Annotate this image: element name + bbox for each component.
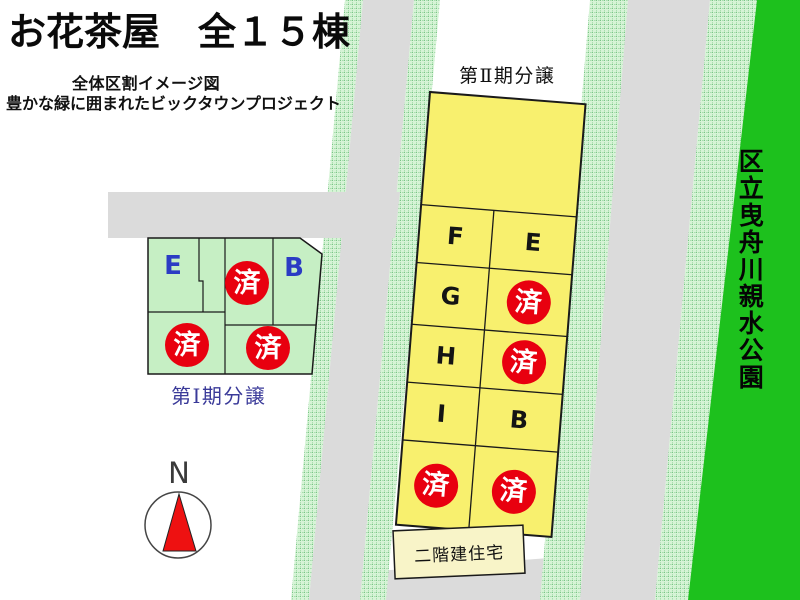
sold-badge: 済 xyxy=(500,339,547,386)
lot-label-b: B xyxy=(279,255,309,287)
lot-cell: 済 xyxy=(469,446,558,537)
lot-cell: 済 xyxy=(480,330,567,394)
park-label: 区立曳舟川親水公園 xyxy=(736,148,762,391)
sold-badge: 済 xyxy=(225,261,269,305)
phase2-front-lot xyxy=(421,92,585,217)
lot-label-e2: E xyxy=(524,230,542,255)
sold-badge: 済 xyxy=(246,326,290,370)
lot-cell: G xyxy=(412,262,490,330)
sold-badge: 済 xyxy=(490,468,537,515)
lot-cell: B xyxy=(475,388,562,452)
lot-cell: E xyxy=(489,210,576,274)
lot-cell: H xyxy=(407,324,484,388)
subtitle-line2: 豊かな緑に囲まれたビックタウンプロジェクト xyxy=(6,90,341,114)
compass-north-arrow-icon xyxy=(163,494,196,551)
lot-label-f: F xyxy=(446,224,464,249)
lot-label-h: H xyxy=(435,343,457,369)
compass xyxy=(145,492,211,558)
phase2-label: 第Ⅱ期分譲 xyxy=(459,61,555,88)
lot-cell: F xyxy=(417,205,494,269)
page-title: お花茶屋 全１５棟 xyxy=(8,12,350,54)
compass-north-letter: N xyxy=(164,459,194,491)
lot-cell: I xyxy=(403,382,480,446)
lot-cell: 済 xyxy=(396,440,475,530)
lot-cell: 済 xyxy=(484,268,572,336)
phase1-label: 第Ⅰ期分譲 xyxy=(171,380,266,409)
sold-badge: 済 xyxy=(412,461,459,508)
sold-badge: 済 xyxy=(505,279,552,326)
sold-badge: 済 xyxy=(165,323,209,367)
side-road xyxy=(108,192,400,238)
lot-row: 済 済 xyxy=(396,440,558,537)
lot-label-i: I xyxy=(436,402,447,427)
site-plan-map: お花茶屋 全１５棟 全体区割イメージ図 豊かな緑に囲まれたビックタウンプロジェク… xyxy=(0,0,800,600)
lot-label-b2: B xyxy=(509,407,529,432)
lot-label-e: E xyxy=(158,253,188,285)
lot-label-g: G xyxy=(440,284,462,309)
